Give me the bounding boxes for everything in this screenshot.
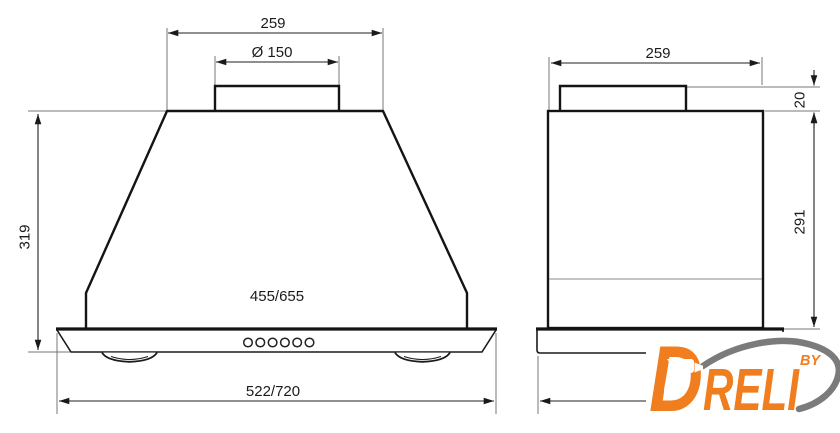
dim-front-top-width: 259 — [260, 16, 285, 31]
logo-by-label: BY — [800, 353, 821, 369]
button-icon — [305, 338, 314, 347]
dim-front-total-width: 522/720 — [246, 384, 300, 399]
dim-side-body-height: 291 — [793, 209, 808, 234]
button-icon — [293, 338, 302, 347]
technical-drawing: D RELI BY 259 Ø 150 319 455/655 522/720 … — [0, 0, 840, 433]
button-icon — [268, 338, 277, 347]
button-icon — [281, 338, 290, 347]
logo-letters-reli: RELI — [703, 357, 800, 423]
drawing-canvas: D RELI BY — [0, 0, 840, 433]
front-duct — [215, 86, 339, 111]
dim-front-body-width: 455/655 — [250, 289, 304, 304]
dim-front-height: 319 — [18, 224, 33, 249]
front-view — [56, 86, 497, 362]
button-icon — [244, 338, 253, 347]
side-body — [548, 111, 763, 328]
lamp-right-icon — [395, 353, 450, 362]
side-view — [536, 86, 784, 353]
dim-side-top-width: 259 — [645, 46, 670, 61]
dim-side-duct-height: 20 — [793, 92, 808, 109]
lamp-left-icon — [102, 353, 157, 362]
side-duct — [560, 86, 686, 111]
button-icon — [256, 338, 265, 347]
brand-logo: D RELI BY — [646, 326, 840, 431]
dim-front-duct-diameter: Ø 150 — [252, 45, 293, 60]
